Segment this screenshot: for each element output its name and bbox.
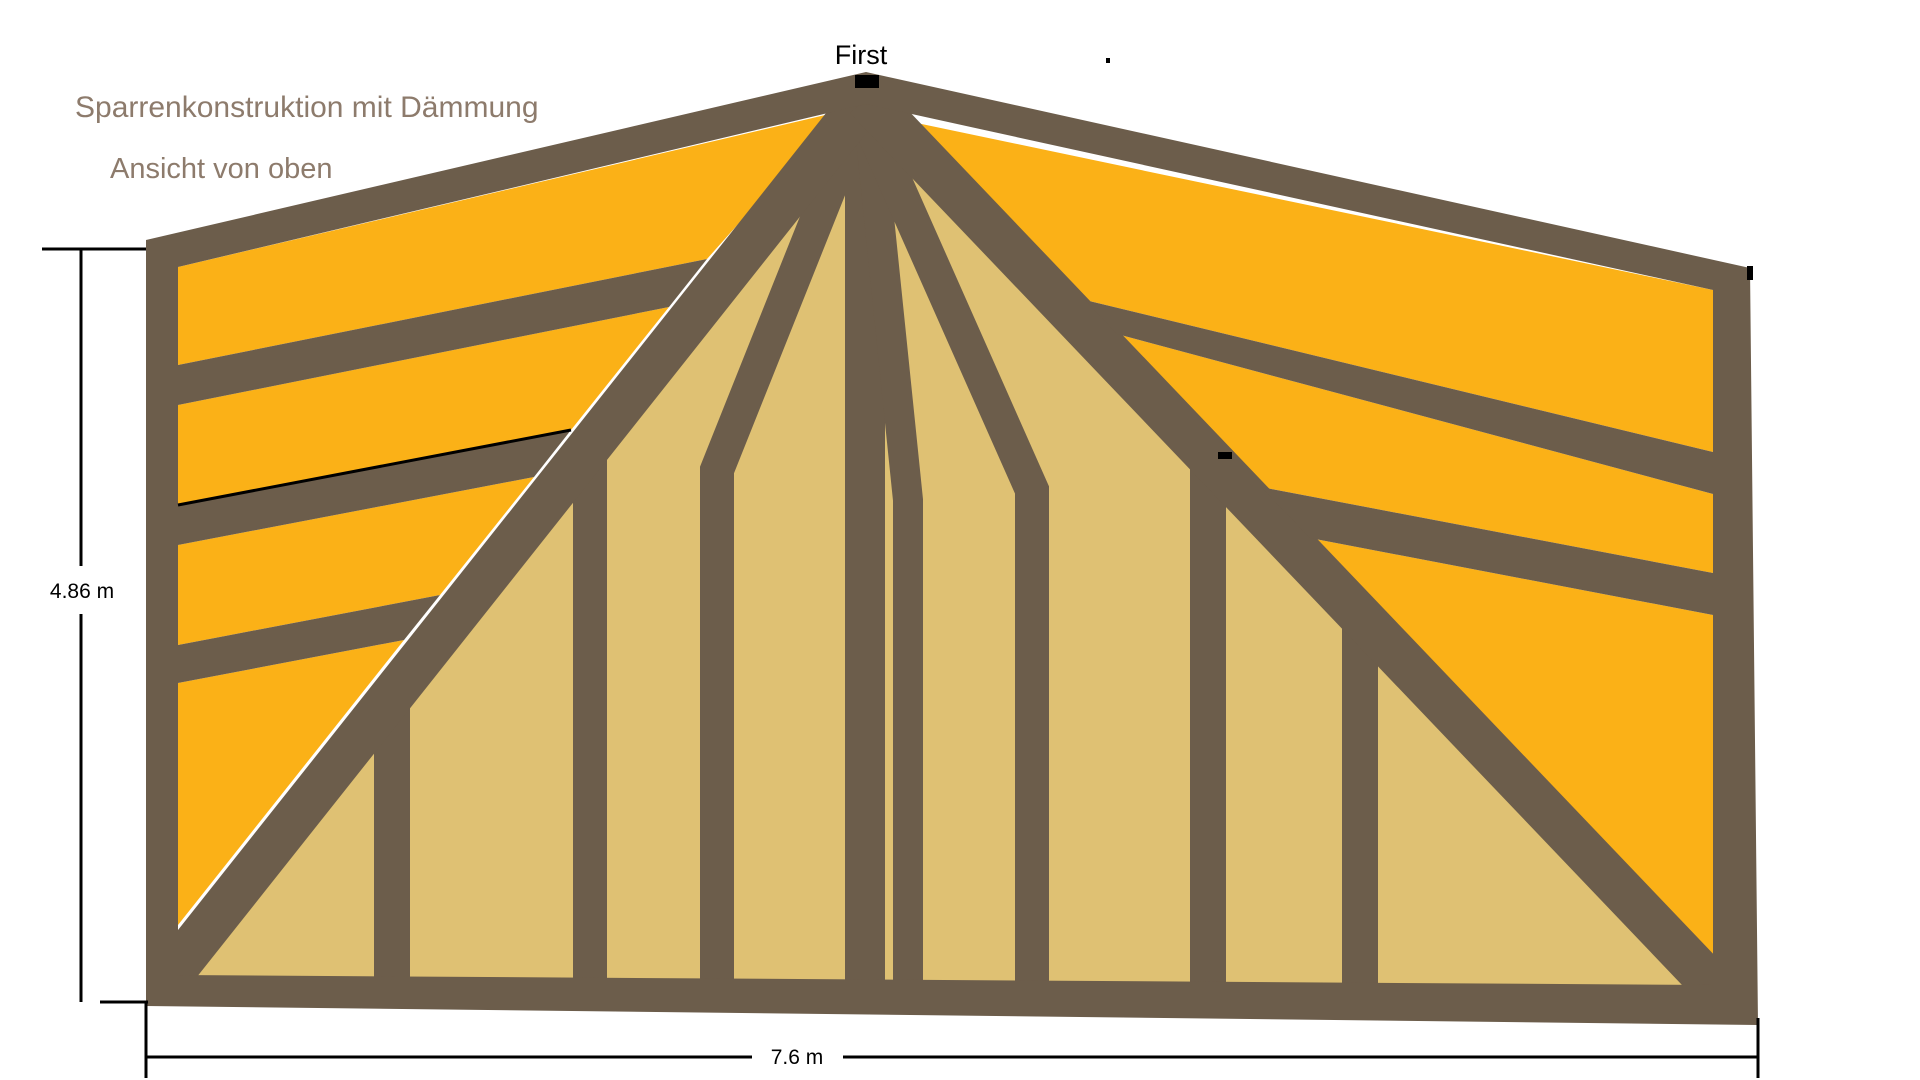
joint-tick-right [1218, 452, 1232, 459]
diagram-subtitle: Ansicht von oben [110, 153, 332, 185]
width-dimension-label: 7.6 m [771, 1046, 824, 1069]
diagram-title: Sparrenkonstruktion mit Dämmung [75, 91, 539, 124]
stray-dot [1106, 58, 1110, 63]
diagram-canvas: Sparrenkonstruktion mit Dämmung Ansicht … [0, 0, 1920, 1080]
height-dimension [42, 249, 148, 1002]
ridge-label: First [835, 40, 888, 70]
corner-tick-top-right [1747, 266, 1753, 280]
ridge-marker [855, 75, 879, 88]
height-dimension-label: 4.86 m [50, 580, 114, 603]
roof-plan-drawing: Sparrenkonstruktion mit Dämmung Ansicht … [0, 0, 1920, 1080]
